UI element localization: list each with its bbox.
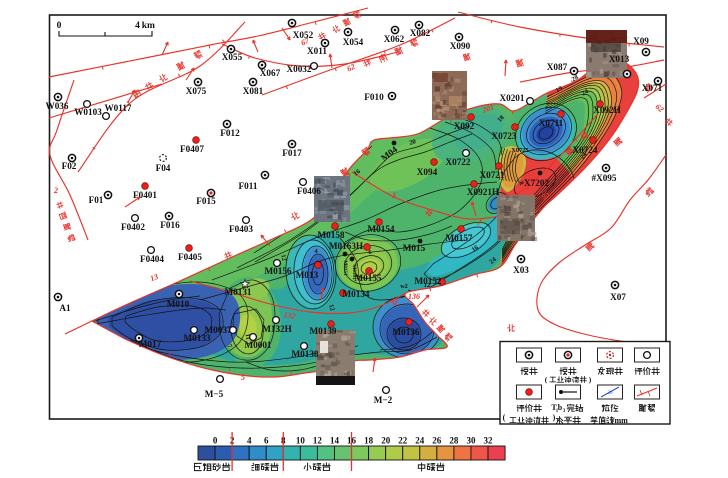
svg-text:W0117: W0117 [104, 103, 131, 113]
svg-text:20: 20 [608, 391, 614, 396]
svg-text:M0155: M0155 [354, 273, 381, 283]
svg-text:F017: F017 [282, 148, 302, 158]
svg-text:M0131: M0131 [224, 287, 251, 297]
svg-text:12: 12 [313, 436, 323, 446]
svg-text:M−2: M−2 [374, 395, 393, 405]
svg-text:W036: W036 [46, 101, 69, 111]
svg-text:M0154: M0154 [367, 224, 394, 234]
svg-text:M013: M013 [296, 270, 319, 280]
svg-text:W0103: W0103 [74, 107, 102, 117]
svg-text:X081: X081 [243, 86, 264, 96]
svg-text:18: 18 [364, 436, 374, 446]
svg-text:F016: F016 [160, 220, 180, 230]
svg-text:M0136: M0136 [392, 327, 419, 337]
svg-text:4: 4 [247, 436, 252, 446]
svg-text:F02: F02 [62, 161, 77, 171]
svg-text:6: 6 [264, 436, 269, 446]
svg-text:M0161: M0161 [351, 264, 357, 280]
svg-text:X062: X062 [384, 34, 405, 44]
svg-text:28: 28 [449, 436, 459, 446]
svg-text:F011: F011 [239, 181, 258, 191]
svg-text:X054: X054 [343, 37, 364, 47]
svg-text:X071: X071 [642, 83, 663, 93]
svg-text:F0405: F0405 [178, 252, 202, 262]
svg-text:0: 0 [213, 436, 218, 446]
svg-text:X075: X075 [186, 86, 207, 96]
svg-text:X011: X011 [307, 46, 327, 56]
svg-text:20: 20 [381, 436, 391, 446]
svg-text:F0406: F0406 [297, 186, 321, 196]
svg-text:F0401: F0401 [133, 190, 157, 200]
svg-text:X0723: X0723 [491, 131, 516, 141]
svg-text:X0722: X0722 [445, 157, 470, 167]
svg-text:M010: M010 [167, 299, 190, 309]
svg-text:30: 30 [467, 436, 477, 446]
svg-text:M0037: M0037 [204, 325, 231, 335]
svg-text:F0404: F0404 [140, 254, 164, 264]
svg-text:X052: X052 [293, 30, 314, 40]
svg-text:): ) [553, 413, 556, 422]
svg-text:F0403: F0403 [229, 224, 253, 234]
svg-text:F01: F01 [89, 195, 104, 205]
svg-text:F010: F010 [364, 92, 384, 102]
svg-text:A1: A1 [59, 303, 71, 313]
svg-text:M0139: M0139 [309, 326, 336, 336]
svg-text:M0138: M0138 [291, 349, 318, 359]
svg-text:M0134: M0134 [342, 289, 369, 299]
svg-text:X0725: X0725 [511, 147, 528, 154]
svg-text:24: 24 [415, 436, 425, 446]
svg-text:X055: X055 [222, 52, 243, 62]
svg-text:X092: X092 [454, 121, 475, 131]
svg-text:F012: F012 [220, 128, 240, 138]
svg-text:M0001: M0001 [244, 340, 271, 350]
svg-text:#X095: #X095 [591, 173, 616, 183]
svg-text:M017: M017 [139, 339, 162, 349]
svg-text:/mm: /mm [611, 416, 628, 425]
svg-text:X087: X087 [547, 62, 568, 72]
svg-text:X094: X094 [417, 167, 438, 177]
svg-text:F0402: F0402 [121, 222, 145, 232]
svg-text:4 km: 4 km [135, 21, 155, 31]
svg-text:X0032: X0032 [286, 64, 311, 74]
svg-text:2: 2 [53, 186, 58, 195]
svg-text:X0724: X0724 [572, 145, 597, 155]
svg-text:X090: X090 [450, 41, 471, 51]
svg-text:F04: F04 [156, 163, 171, 173]
svg-text:X067: X067 [260, 68, 281, 78]
svg-text:M0163H: M0163H [329, 241, 363, 251]
svg-text:M132H: M132H [262, 324, 292, 334]
svg-text:X03: X03 [513, 265, 529, 275]
svg-text:12: 12 [279, 254, 287, 262]
svg-text:(: ( [503, 413, 506, 422]
svg-text:22: 22 [398, 436, 408, 446]
svg-text:14: 14 [330, 436, 340, 446]
svg-text:F0407: F0407 [180, 144, 204, 154]
svg-text:M−5: M−5 [205, 389, 224, 399]
svg-text:F015: F015 [196, 196, 216, 206]
svg-text:X09: X09 [633, 36, 649, 46]
svg-text:X0201: X0201 [499, 93, 524, 103]
svg-text:M0157: M0157 [445, 233, 472, 243]
svg-text:X0921H: X0921H [467, 187, 499, 197]
svg-text:M0158: M0158 [317, 230, 344, 240]
svg-text:M0156: M0156 [264, 266, 291, 276]
svg-text:5: 5 [241, 373, 245, 382]
svg-text:X013: X013 [609, 54, 630, 64]
svg-text:10: 10 [296, 436, 306, 446]
svg-text:M0151: M0151 [342, 260, 348, 276]
svg-text:≠X7202: ≠X7202 [519, 178, 549, 188]
svg-text:X07: X07 [610, 292, 626, 302]
svg-text:X082: X082 [410, 28, 431, 38]
svg-text:0: 0 [57, 21, 62, 31]
svg-text:136: 136 [408, 292, 420, 301]
svg-text:X092H: X092H [593, 105, 621, 115]
svg-text:32: 32 [484, 436, 494, 446]
svg-text:w2: w2 [400, 283, 408, 290]
svg-text:M015: M015 [403, 243, 426, 253]
svg-text:X0711: X0711 [539, 118, 564, 128]
svg-text:M0152: M0152 [414, 276, 441, 286]
svg-text:X0721: X0721 [479, 170, 504, 180]
svg-text:26: 26 [432, 436, 442, 446]
svg-text:3: 3 [391, 191, 396, 200]
